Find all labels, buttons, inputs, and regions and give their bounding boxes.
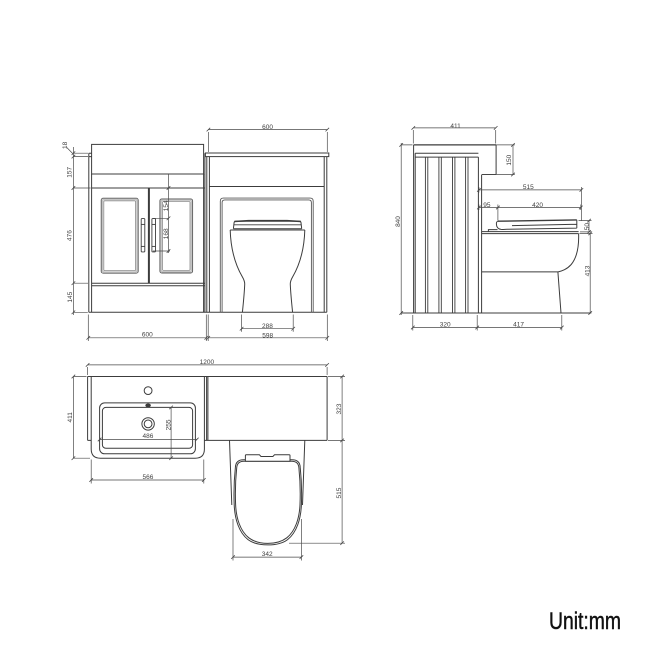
svg-text:320: 320 — [440, 322, 451, 329]
svg-text:476: 476 — [66, 230, 73, 241]
svg-text:168: 168 — [163, 228, 170, 239]
svg-text:50: 50 — [584, 223, 591, 231]
svg-text:157: 157 — [66, 166, 73, 177]
svg-text:486: 486 — [142, 433, 153, 440]
svg-text:154: 154 — [163, 200, 170, 211]
svg-text:420: 420 — [532, 202, 543, 209]
svg-text:417: 417 — [513, 322, 524, 329]
svg-text:566: 566 — [142, 474, 153, 481]
svg-text:411: 411 — [67, 412, 74, 423]
svg-text:342: 342 — [262, 551, 273, 558]
svg-text:840: 840 — [395, 216, 402, 227]
svg-text:600: 600 — [262, 124, 273, 131]
svg-text:18: 18 — [62, 141, 69, 149]
svg-text:288: 288 — [262, 323, 273, 330]
svg-text:255: 255 — [165, 419, 172, 430]
svg-text:95: 95 — [483, 202, 491, 209]
svg-text:Unit:mm: Unit:mm — [549, 608, 621, 635]
svg-text:598: 598 — [262, 332, 273, 339]
svg-text:1200: 1200 — [200, 359, 215, 366]
svg-text:413: 413 — [584, 265, 591, 276]
svg-text:150: 150 — [506, 154, 513, 165]
svg-text:323: 323 — [336, 403, 343, 414]
svg-text:600: 600 — [142, 332, 153, 339]
svg-text:411: 411 — [450, 123, 461, 130]
svg-text:145: 145 — [67, 291, 74, 302]
svg-text:515: 515 — [336, 487, 343, 498]
svg-text:515: 515 — [523, 184, 534, 191]
